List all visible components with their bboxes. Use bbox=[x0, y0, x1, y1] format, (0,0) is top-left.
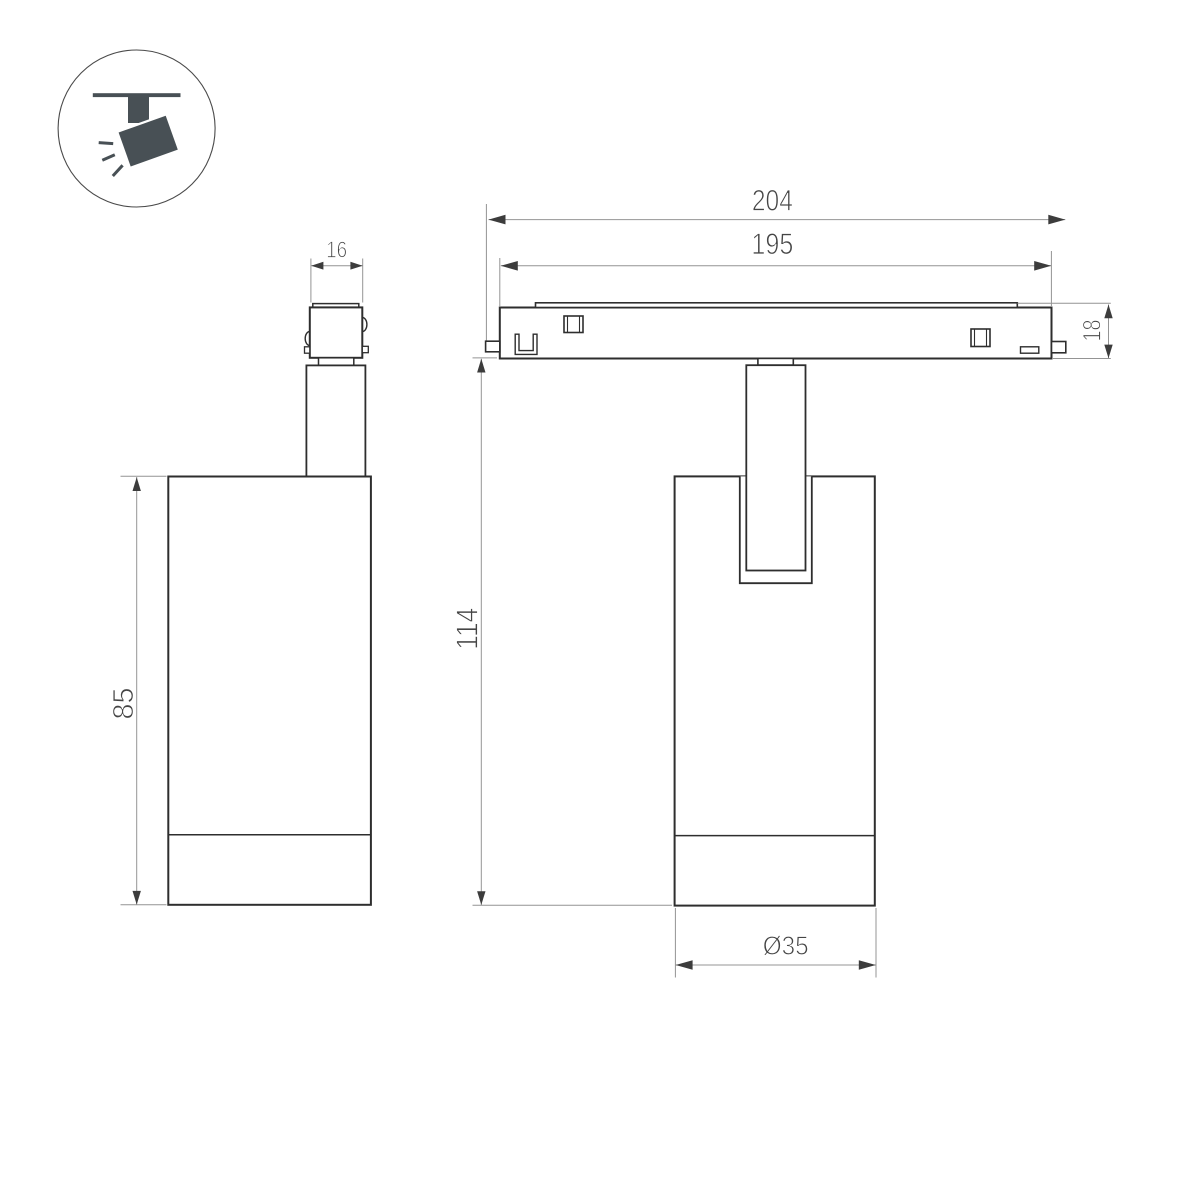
svg-text:85: 85 bbox=[108, 688, 140, 720]
svg-text:Ø35: Ø35 bbox=[763, 931, 809, 961]
svg-text:18: 18 bbox=[1079, 320, 1107, 342]
svg-text:204: 204 bbox=[752, 185, 793, 218]
svg-text:114: 114 bbox=[450, 608, 485, 650]
svg-text:195: 195 bbox=[751, 228, 793, 261]
svg-text:16: 16 bbox=[326, 237, 347, 263]
